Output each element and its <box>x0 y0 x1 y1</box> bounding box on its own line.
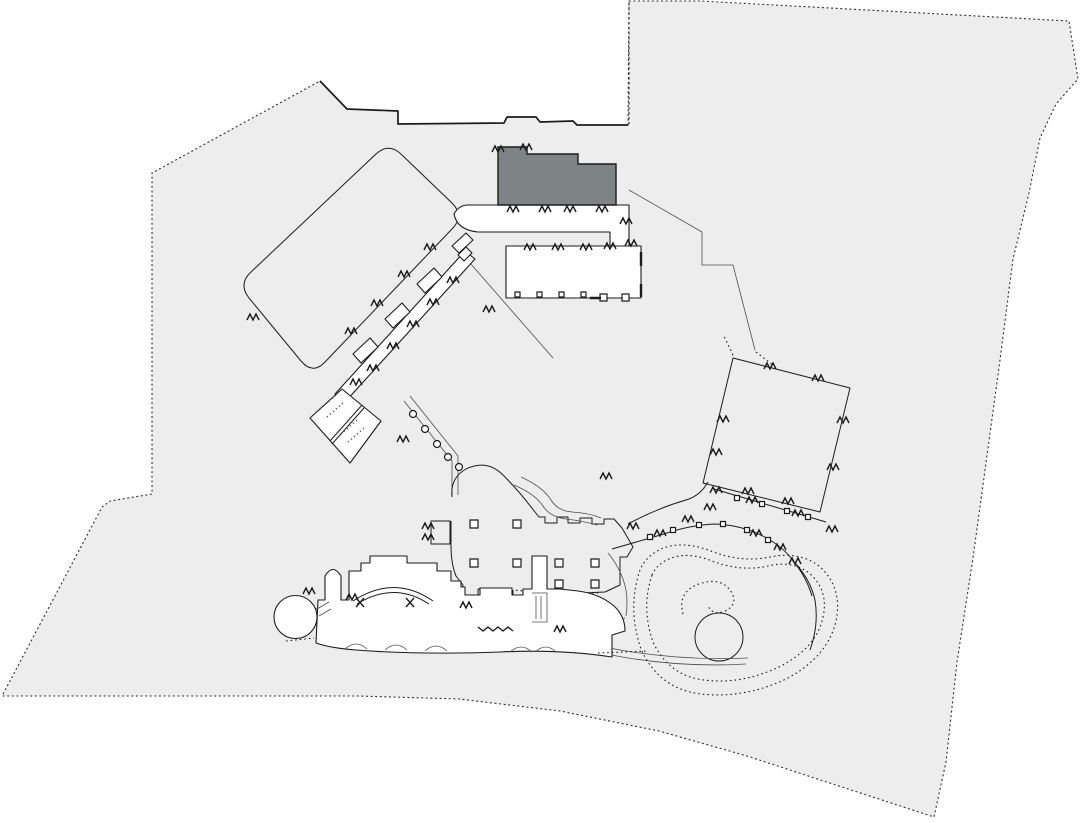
hotel-block <box>506 246 641 298</box>
site-plan <box>0 0 1080 823</box>
site-parcel-boundary <box>2 1 1078 817</box>
site-plan-canvas <box>0 0 1080 823</box>
rotunda-circle <box>274 596 317 639</box>
